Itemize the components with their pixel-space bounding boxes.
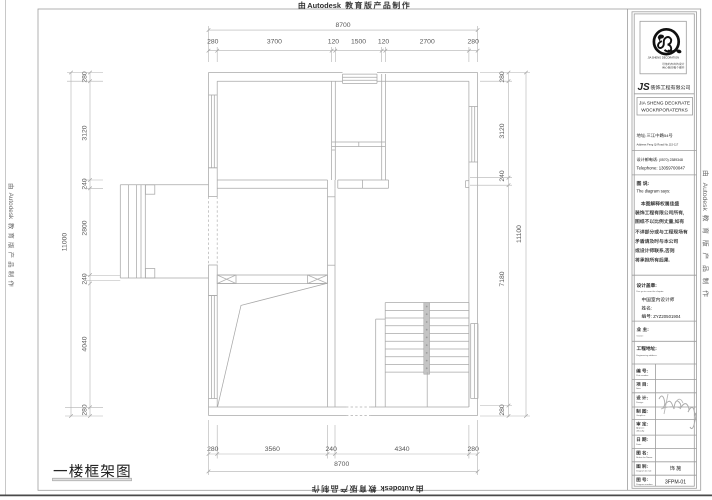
svg-text:Owner:: Owner: [637,334,644,337]
svg-text:Autodesk: Autodesk [7,193,14,220]
svg-text:54: 54 [664,133,669,138]
svg-text:Part number:: Part number: [636,374,649,377]
svg-text:officially:: officially: [636,430,645,432]
svg-text:3120: 3120 [499,123,506,138]
svg-text:240: 240 [499,170,506,182]
svg-text:Des gn to cover the chapter:: Des gn to cover the chapter: [637,290,665,293]
svg-text:7180: 7180 [499,271,506,286]
svg-text:Diagram do not:: Diagram do not: [636,470,652,473]
svg-text:JIA SHENG DECORATION: JIA SHENG DECORATION [648,55,679,59]
svg-text:Approve: Approve [636,427,645,430]
svg-text:Graphics:: Graphics: [636,414,646,417]
svg-text:,: , [683,210,684,215]
svg-text:240: 240 [82,273,89,285]
svg-text:120: 120 [378,39,390,46]
svg-text:Autodesk: Autodesk [307,1,342,10]
svg-text:Button for Name:: Button for Name: [636,456,653,459]
svg-text:280: 280 [82,404,89,416]
svg-text:280: 280 [499,404,506,416]
svg-text::: : [645,133,646,138]
svg-text:4340: 4340 [394,446,409,453]
svg-text::: : [651,306,652,311]
svg-text:3FPM-01: 3FPM-01 [665,480,686,486]
svg-text:120: 120 [328,39,340,46]
svg-text:Design:: Design: [636,402,644,404]
svg-text:1500: 1500 [351,39,366,46]
svg-text:Item:: Item: [636,387,641,390]
svg-text:3560: 3560 [265,446,280,453]
svg-text:The diagram says:: The diagram says: [637,188,671,193]
svg-text:Date:: Date: [636,443,642,446]
svg-text:2800: 2800 [82,220,89,235]
svg-text:240: 240 [326,446,338,453]
svg-text:3700: 3700 [267,39,282,46]
svg-text:3120: 3120 [82,125,89,140]
svg-text:280: 280 [207,446,219,453]
svg-text:11100: 11100 [516,225,523,243]
svg-text:,: , [673,219,674,224]
svg-text:Engineering address:: Engineering address: [637,354,658,357]
svg-text:.: . [669,258,670,263]
svg-text:4040: 4040 [82,336,89,351]
svg-text:JIA SHENG DECKRATE: JIA SHENG DECKRATE [639,100,690,105]
svg-text:2700: 2700 [420,39,435,46]
svg-text:8700: 8700 [334,461,349,468]
svg-text:280: 280 [207,39,219,46]
svg-text:: ZYZ20501904: : ZYZ20501904 [651,314,681,319]
svg-text:Autodesk: Autodesk [701,183,708,212]
svg-text:280: 280 [468,39,480,46]
svg-text:: (0570) 2389348: : (0570) 2389348 [657,158,683,162]
svg-text:,: , [664,248,665,253]
svg-text:Diagram number:: Diagram number: [636,483,653,486]
svg-text:Address Feng Qi Road No.115-11: Address Feng Qi Road No.115-117 [637,143,679,147]
svg-text:8700: 8700 [335,22,350,29]
svg-text:11000: 11000 [62,233,69,252]
svg-text:Autodesk: Autodesk [380,484,415,493]
svg-text:JS: JS [638,82,651,93]
svg-text:Telephone: 13059700047: Telephone: 13059700047 [637,165,686,170]
svg-text:WOCKRPORATERKS: WOCKRPORATERKS [641,108,688,113]
